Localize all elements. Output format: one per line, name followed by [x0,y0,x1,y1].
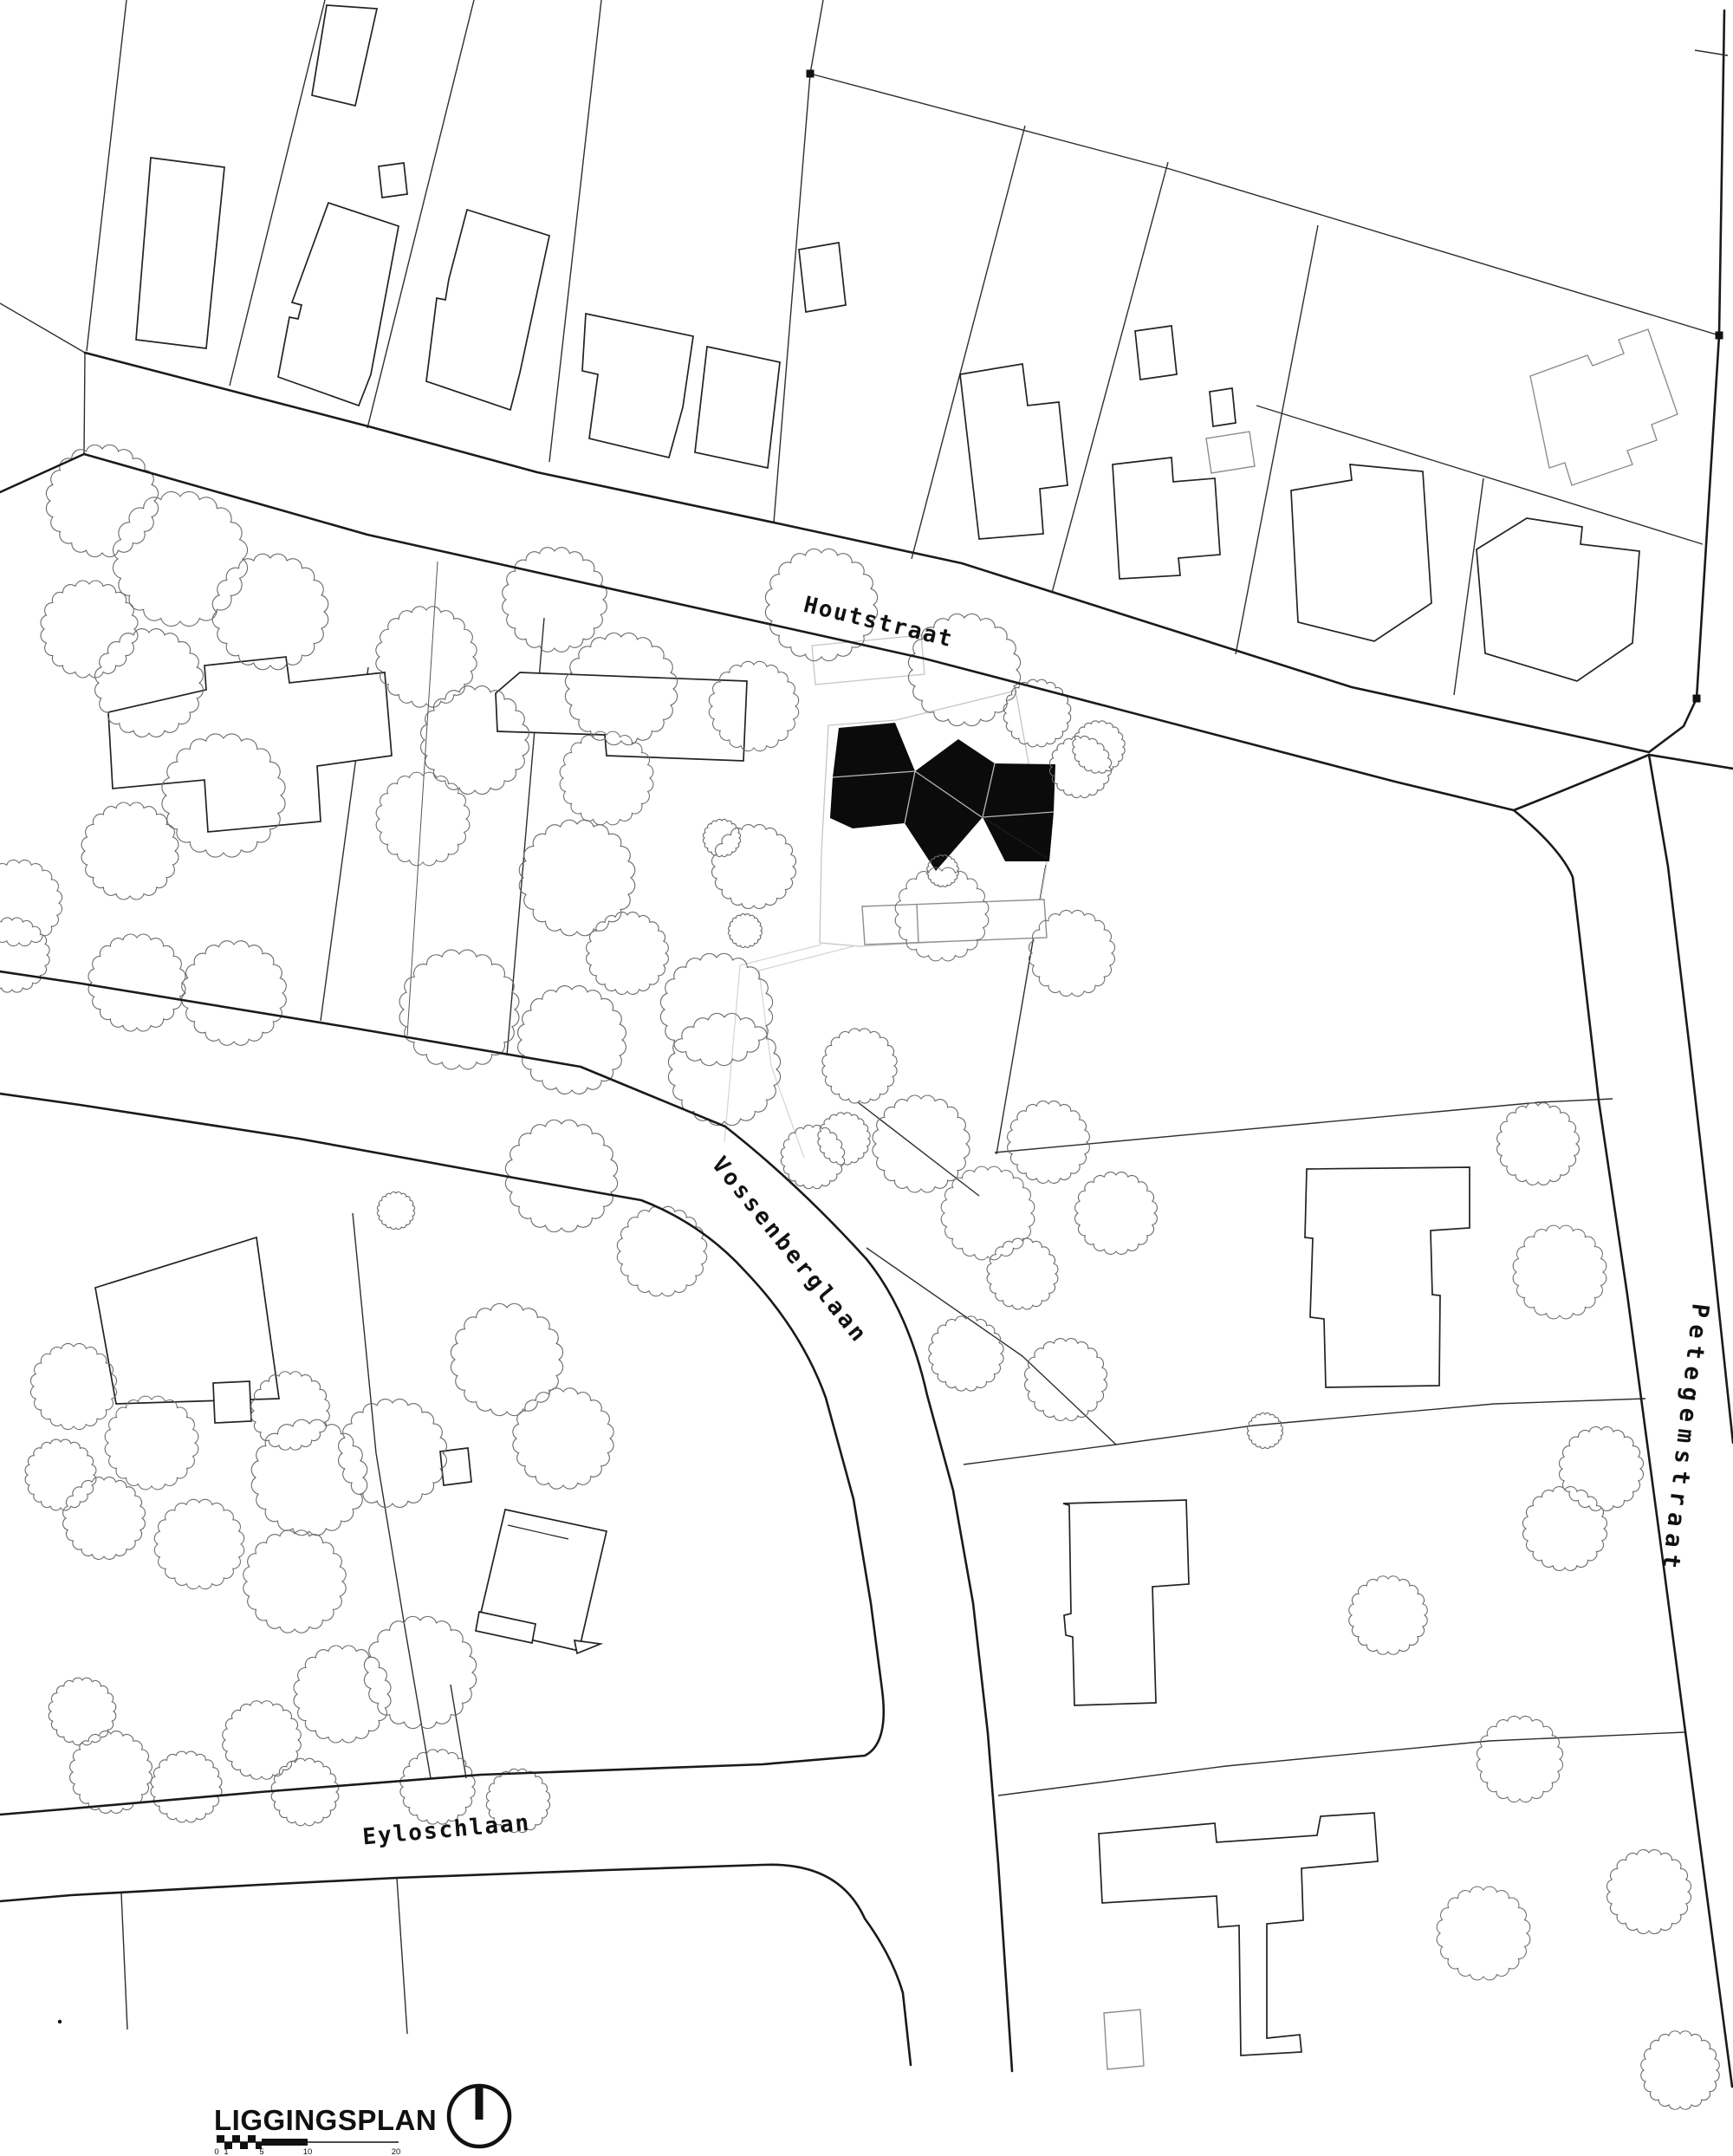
tree [503,548,607,653]
tree [513,1388,613,1489]
survey-marker [1693,695,1701,703]
highlighted-building [830,723,1055,871]
tree [822,1029,897,1103]
tree [271,1758,339,1826]
boundary-line [451,1685,466,1778]
scale-tick: 1 [224,2147,228,2156]
tree [1607,1850,1691,1934]
shed-footprint [1210,388,1236,426]
tree [668,1013,780,1125]
street-label-houtstraat: Houtstraat [802,592,957,653]
scale-bar-thick [262,2139,308,2146]
scale-bar: 0 1 5 10 20 [214,2135,400,2156]
house-footprint [95,1237,279,1404]
shed-footprint [799,243,846,312]
buildings [95,5,1678,2069]
boundary-line [121,1893,127,2029]
house-footprint [1477,518,1639,681]
tree [154,1499,243,1588]
scale-tick: 20 [392,2147,401,2156]
tree [339,1399,447,1508]
house-footprint [1113,458,1220,579]
scale-tick: 0 [214,2147,218,2156]
tree [223,1701,301,1779]
scale-tick: 10 [303,2147,313,2156]
street-label-petegemstraat: Petegemstraat [1656,1302,1713,1577]
building-volume [983,812,1054,861]
tree-small [1248,1413,1283,1449]
tree [712,825,796,909]
tree [212,554,328,670]
tree-small [703,819,740,856]
tree [1523,1487,1607,1571]
house-footprint-gray [1530,329,1678,485]
survey-dot [58,2020,62,2023]
tree [49,1678,116,1745]
tree [1641,2031,1719,2109]
tree [25,1439,96,1510]
boundary-line [549,0,601,462]
house-footprint [1291,464,1431,641]
legend: LIGGINGSPLAN 0 1 5 10 20 [214,2085,510,2156]
tree [63,1477,146,1560]
tree [46,445,158,556]
tree [1349,1576,1427,1654]
shed-footprint [1135,326,1177,380]
tree-small [729,914,763,948]
house-footprint [960,364,1068,539]
road-edge-petegemstraat-west [1514,810,1732,2087]
scale-bar-block [240,2142,248,2149]
tree-small [377,1192,414,1229]
boundary-line [810,74,1719,335]
house-footprint [1063,1500,1189,1705]
street-label-eyloschlaan: Eyloschlaan [361,1810,531,1851]
road-edge-eyloschlaan-south [0,1865,911,2065]
house-annex [213,1381,251,1423]
tree [1008,1101,1090,1184]
building-volume [983,763,1055,817]
scale-bar-block [232,2135,240,2142]
tree [987,1238,1058,1309]
parcel-lines [0,0,1728,2034]
shed-footprint-gray [1206,432,1255,473]
tree [399,950,519,1069]
tree [113,491,247,626]
boundary-line [353,1213,431,1778]
tree [451,1303,562,1415]
tree [1003,679,1071,747]
tree [519,820,635,936]
tree [1073,721,1125,773]
tree [0,918,49,992]
house-footprint [1305,1167,1470,1387]
tree [1075,1172,1158,1255]
road-edge-houtstraat-southeast [1514,755,1733,810]
tree [1049,736,1111,797]
house-annex [574,1640,600,1653]
boundary-line [397,1878,407,2034]
survey-marker [1716,332,1723,340]
tree [505,1120,617,1231]
tree [376,607,477,707]
boundary-line [858,1102,979,1196]
tree [0,860,62,945]
tree [818,1113,870,1165]
shed-footprint-gray [1104,2010,1144,2069]
shed-footprint [379,163,407,198]
tree [41,581,138,678]
boundary-line [998,1732,1684,1796]
house-footprint [426,210,549,410]
survey-marker [807,70,815,78]
boundary-line [866,1248,1116,1445]
tree [781,1125,844,1188]
house-footprint [136,158,224,348]
tree [929,1316,1003,1391]
tree [151,1751,222,1822]
tree [617,1206,706,1296]
tree [1560,1427,1644,1511]
tree [587,912,669,995]
tree [105,1396,198,1490]
boundary-line [964,1399,1645,1464]
project-parcel [724,635,1047,1158]
boundary-line [87,0,127,351]
tree [81,802,178,899]
building-volume [830,723,915,828]
plan-title: LIGGINGSPLAN [214,2104,437,2136]
tree [182,941,287,1046]
tree [1477,1716,1562,1802]
scale-bar-block [248,2135,256,2142]
tree [251,1419,367,1536]
tree [660,953,772,1065]
tree [1513,1225,1606,1319]
boundary-line [0,303,85,353]
tree [30,1343,116,1429]
site-plan-drawing: Houtstraat Vossenberglaan Petegemstraat … [0,0,1733,2156]
tree [243,1530,346,1633]
site-plan-canvas: Houtstraat Vossenberglaan Petegemstraat … [0,0,1733,2156]
tree [941,1166,1035,1260]
house-footprint [582,314,693,458]
tree [88,934,185,1031]
scale-bar-block [217,2135,224,2142]
north-arrow [449,2085,510,2146]
shed-footprint [440,1448,471,1485]
north-arrow-needle [476,2085,484,2120]
tree [1497,1103,1580,1185]
tree [364,1616,476,1728]
garage-outline [862,899,1047,945]
tree [1437,1886,1530,1980]
tree [1025,1339,1107,1421]
house-footprint [312,5,377,106]
boundary-line [84,353,85,454]
tree [294,1646,391,1743]
driveway-edge [724,945,821,1142]
house-footprint [695,347,780,468]
scale-tick: 5 [259,2147,263,2156]
boundary-line-east [1697,10,1724,698]
building-volume [905,739,995,871]
